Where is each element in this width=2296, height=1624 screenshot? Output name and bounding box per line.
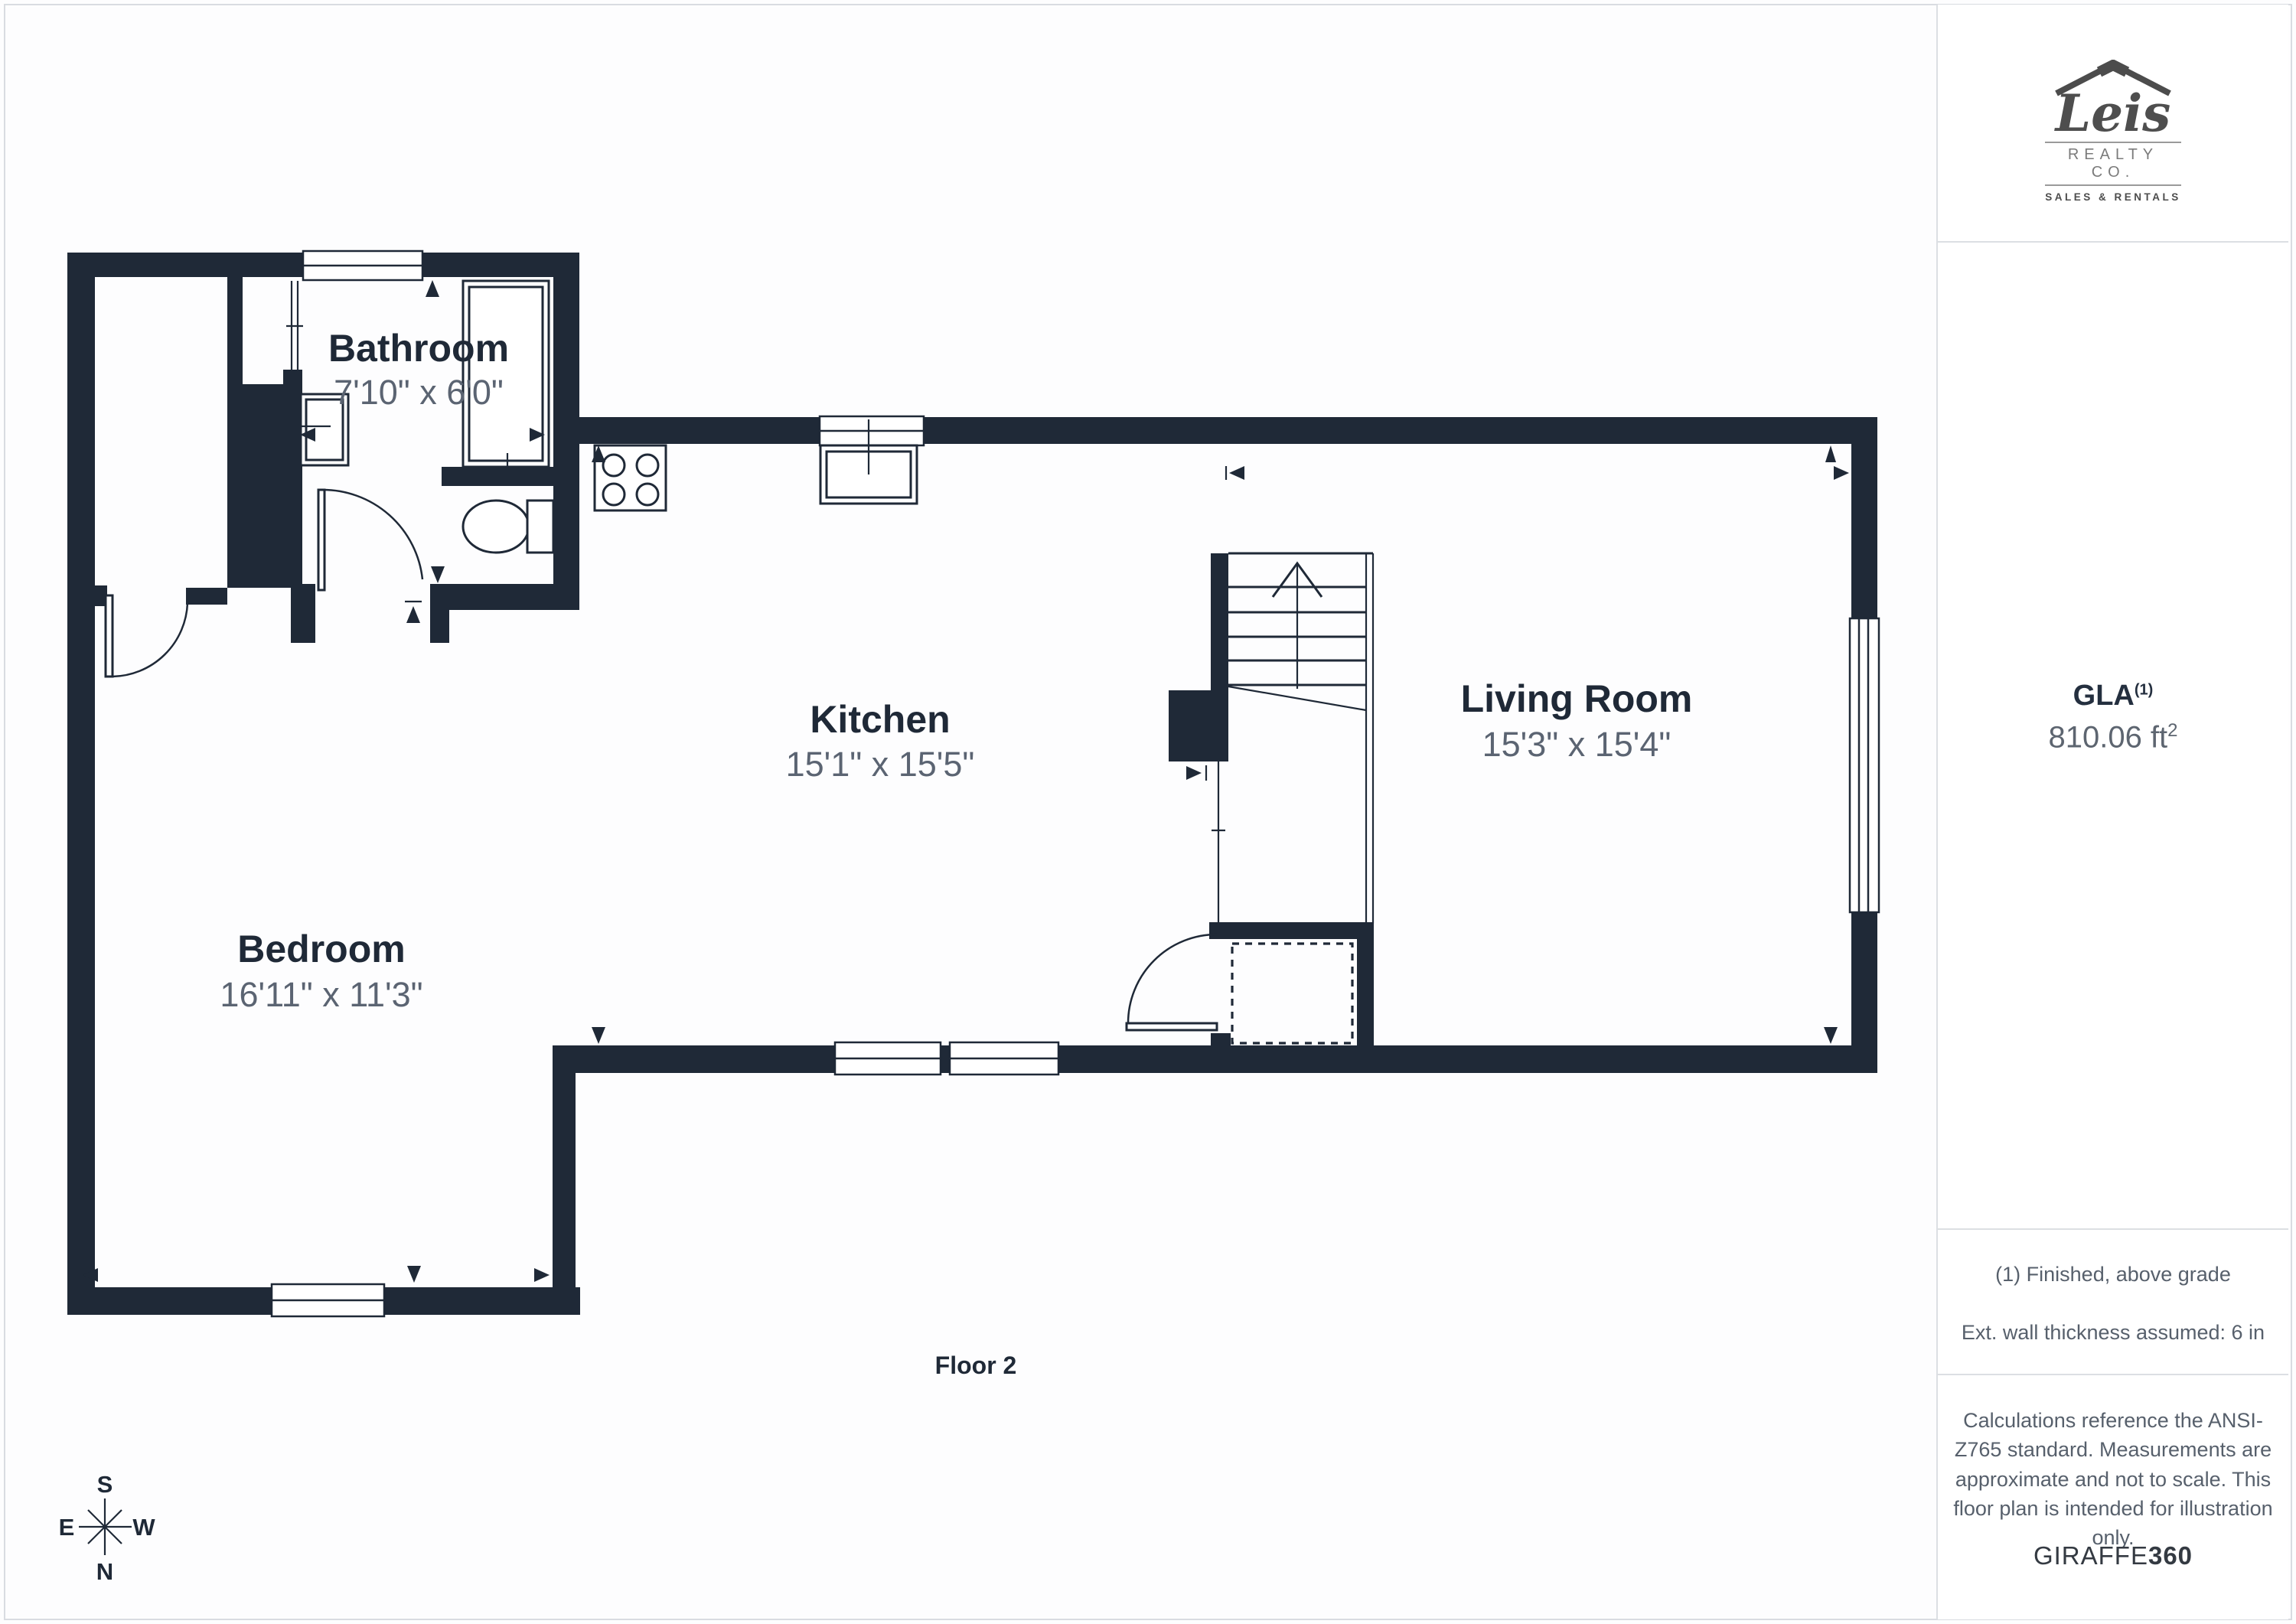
door-under-stairs (1127, 934, 1217, 1030)
compass-e: E (59, 1514, 75, 1541)
door-bedroom (106, 595, 188, 677)
bedroom-dims: 16'11" x 11'3" (220, 975, 422, 1014)
door-bathroom (318, 490, 422, 590)
floor-label: Floor 2 (935, 1352, 1017, 1379)
room-labels: Bathroom 7'10" x 6'0" Kitchen 15'1" x 15… (220, 327, 1692, 1379)
logo-realty-line: REALTY CO. (2045, 142, 2181, 186)
compass-w: W (132, 1514, 155, 1541)
compass-s: S (97, 1471, 113, 1498)
stove (595, 445, 666, 510)
kitchen-label: Kitchen (810, 698, 950, 741)
bedroom-label: Bedroom (237, 928, 405, 970)
bathroom-label: Bathroom (328, 327, 509, 370)
kitchen-dims: 15'1" x 15'5" (786, 745, 975, 784)
gla-block: GLA(1) 810.06 ft2 (1938, 680, 2288, 755)
sidebar-divider-2 (1938, 1228, 2288, 1230)
window-living-right (1850, 618, 1879, 912)
window-bathroom-top (303, 251, 422, 280)
compass-icon: S N E W (59, 1471, 156, 1585)
giraffe360-brand: GIRAFFE360 (1938, 1541, 2288, 1570)
window-kitchen-bottom-2 (950, 1042, 1058, 1075)
sidebar-divider-1 (1938, 241, 2288, 243)
window-bedroom-bottom (272, 1284, 384, 1316)
living-room-label: Living Room (1461, 677, 1693, 720)
living-room-dims: 15'3" x 15'4" (1482, 725, 1671, 764)
note-wall-thickness: Ext. wall thickness assumed: 6 in (1938, 1321, 2288, 1345)
gla-label: GLA(1) (1938, 680, 2288, 713)
staircase (1212, 553, 1373, 1043)
info-sidebar: Leis REALTY CO. SALES & RENTALS GLA(1) 8… (1936, 5, 2288, 1619)
closet-partition (286, 281, 303, 370)
bathroom-dims: 7'10" x 6'0" (334, 373, 504, 412)
window-kitchen-top (820, 416, 924, 445)
logo-name: Leis (1938, 88, 2288, 139)
realty-logo: Leis REALTY CO. SALES & RENTALS (1938, 60, 2288, 203)
sidebar-divider-3 (1938, 1374, 2288, 1375)
gla-value: 810.06 ft2 (1938, 720, 2288, 755)
compass-n: N (96, 1558, 113, 1585)
toilet (463, 501, 553, 553)
logo-tagline: SALES & RENTALS (1938, 191, 2288, 203)
under-stair-storage (1232, 944, 1352, 1043)
note-finished: (1) Finished, above grade (1938, 1263, 2288, 1286)
disclaimer-text: Calculations reference the ANSI-Z765 sta… (1952, 1406, 2274, 1553)
window-kitchen-bottom-1 (835, 1042, 941, 1075)
